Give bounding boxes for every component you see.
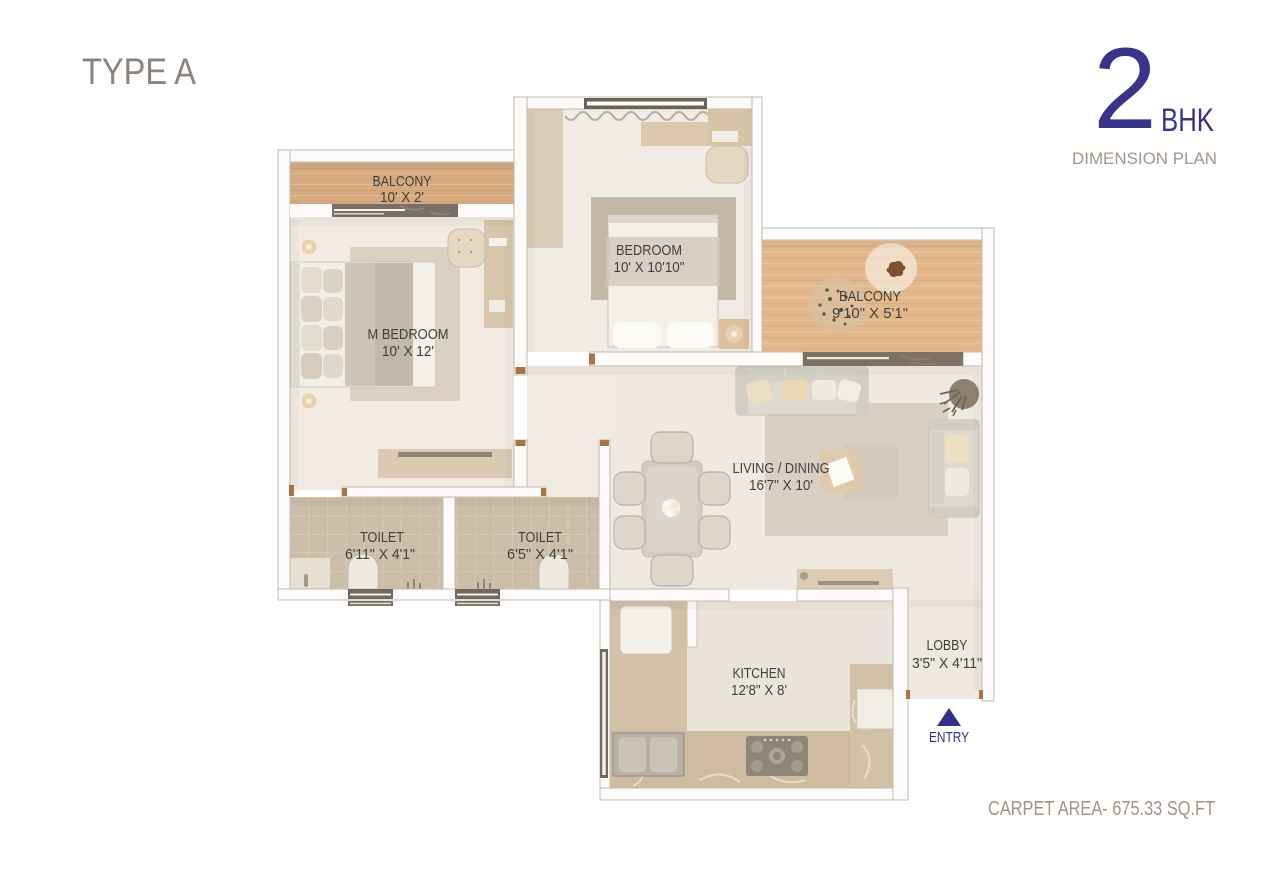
svg-text:LIVING / DINING: LIVING / DINING — [733, 460, 830, 477]
svg-text:CARPET AREA- 675.33 SQ.FT: CARPET AREA- 675.33 SQ.FT — [988, 798, 1215, 820]
svg-text:KITCHEN: KITCHEN — [733, 665, 786, 682]
svg-text:BEDROOM: BEDROOM — [616, 242, 682, 259]
svg-text:TOILET: TOILET — [518, 529, 562, 546]
svg-text:DIMENSION PLAN: DIMENSION PLAN — [1072, 149, 1217, 168]
svg-text:6'5" X 4'1": 6'5" X 4'1" — [507, 546, 573, 563]
svg-text:BHK: BHK — [1161, 102, 1214, 138]
svg-text:10' X 12': 10' X 12' — [382, 343, 434, 360]
svg-text:TYPE A: TYPE A — [82, 51, 196, 92]
svg-text:6'11" X 4'1": 6'11" X 4'1" — [345, 546, 415, 563]
svg-text:10' X 10'10": 10' X 10'10" — [614, 259, 685, 276]
svg-text:10' X 2': 10' X 2' — [380, 189, 424, 206]
svg-text:M BEDROOM: M BEDROOM — [368, 326, 449, 343]
svg-text:2: 2 — [1093, 25, 1157, 153]
svg-text:16'7" X 10': 16'7" X 10' — [749, 477, 813, 494]
svg-text:9'10" X 5'1": 9'10" X 5'1" — [832, 305, 908, 322]
svg-text:LOBBY: LOBBY — [927, 637, 968, 654]
svg-text:3'5" X 4'11": 3'5" X 4'11" — [912, 655, 982, 672]
svg-text:12'8" X 8': 12'8" X 8' — [731, 682, 787, 699]
svg-text:ENTRY: ENTRY — [929, 729, 969, 746]
svg-text:BALCONY: BALCONY — [373, 173, 432, 190]
svg-text:BALCONY: BALCONY — [839, 288, 901, 305]
svg-text:TOILET: TOILET — [360, 529, 404, 546]
